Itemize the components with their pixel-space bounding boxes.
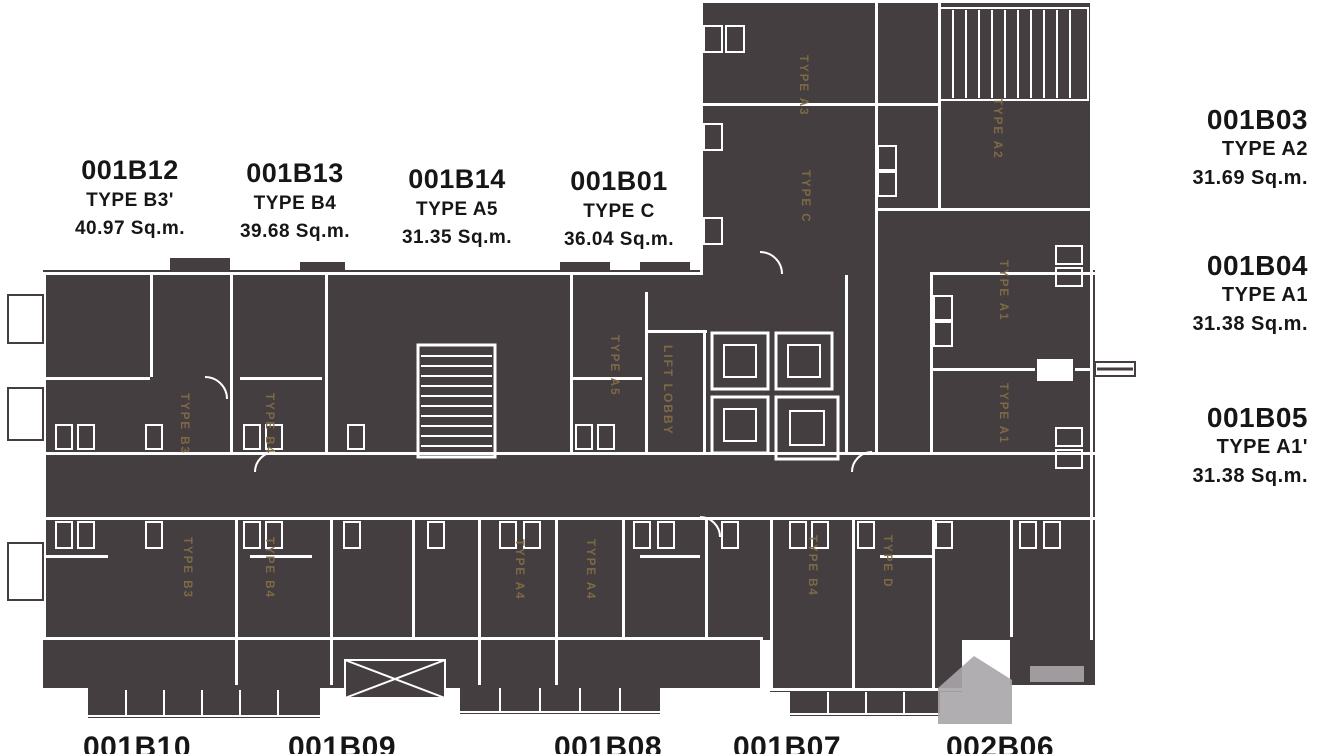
- unit-label-001B07: 001B07: [697, 731, 877, 754]
- unit-type: TYPE A2: [1130, 135, 1308, 164]
- unit-type: TYPE A1: [1130, 281, 1308, 310]
- unit-id: 001B12: [35, 155, 225, 186]
- unit-label-001B03: 001B03 TYPE A2 31.69 Sq.m.: [1130, 104, 1308, 192]
- unit-type: TYPE B3': [35, 186, 225, 215]
- unit-area: 36.04 Sq.m.: [524, 226, 714, 254]
- plan-type-label-b3-top: TYPE B3: [178, 393, 190, 455]
- plan-dark-masses: [43, 0, 1095, 718]
- unit-area: 31.38 Sq.m.: [1130, 462, 1308, 490]
- plan-type-label-a3: TYPE A3: [797, 55, 809, 117]
- floorplan-page: TYPE B3 TYPE B4 TYPE A5 LIFT LOBBY TYPE …: [0, 0, 1342, 754]
- unit-id: 001B04: [1130, 250, 1308, 281]
- unit-id: 001B03: [1130, 104, 1308, 135]
- plan-type-label-b3-bottom: TYPE B3: [181, 537, 193, 599]
- unit-type: TYPE A1': [1130, 433, 1308, 462]
- plan-lift-lobby-label: LIFT LOBBY: [661, 345, 675, 436]
- plan-type-label-a4-right: TYPE A4: [584, 539, 596, 601]
- plan-type-label-a5: TYPE A5: [608, 335, 620, 397]
- plan-type-label-c: TYPE C: [799, 170, 811, 224]
- plan-type-label-b4-far: TYPE B4: [806, 535, 818, 597]
- plan-type-label-b4-top: TYPE B4: [263, 393, 275, 455]
- unit-label-001B10: 001B10: [47, 731, 227, 754]
- unit-label-001B09: 001B09: [252, 731, 432, 754]
- unit-area: 31.69 Sq.m.: [1130, 164, 1308, 192]
- plan-type-label-b4-bottom: TYPE B4: [263, 537, 275, 599]
- plan-type-label-a4-left: TYPE A4: [513, 539, 525, 601]
- unit-label-001B12: 001B12 TYPE B3' 40.97 Sq.m.: [35, 155, 225, 243]
- unit-label-001B05: 001B05 TYPE A1' 31.38 Sq.m.: [1130, 402, 1308, 490]
- unit-label-001B04: 001B04 TYPE A1 31.38 Sq.m.: [1130, 250, 1308, 338]
- plan-type-label-d: TYPE D: [881, 535, 893, 589]
- unit-id: 001B01: [524, 166, 714, 197]
- plan-type-label-a1-upper: TYPE A1: [997, 260, 1009, 322]
- unit-id: 001B05: [1130, 402, 1308, 433]
- unit-label-001B01: 001B01 TYPE C 36.04 Sq.m.: [524, 166, 714, 254]
- unit-label-002B06: 002B06: [910, 731, 1090, 754]
- unit-area: 31.38 Sq.m.: [1130, 310, 1308, 338]
- left-balconies: [8, 295, 43, 600]
- unit-area: 40.97 Sq.m.: [35, 215, 225, 243]
- plan-type-label-a1-lower: TYPE A1: [997, 383, 1009, 445]
- unit-type: TYPE C: [524, 197, 714, 226]
- plan-type-label-a2: TYPE A2: [991, 98, 1003, 160]
- unit-label-001B08: 001B08: [518, 731, 698, 754]
